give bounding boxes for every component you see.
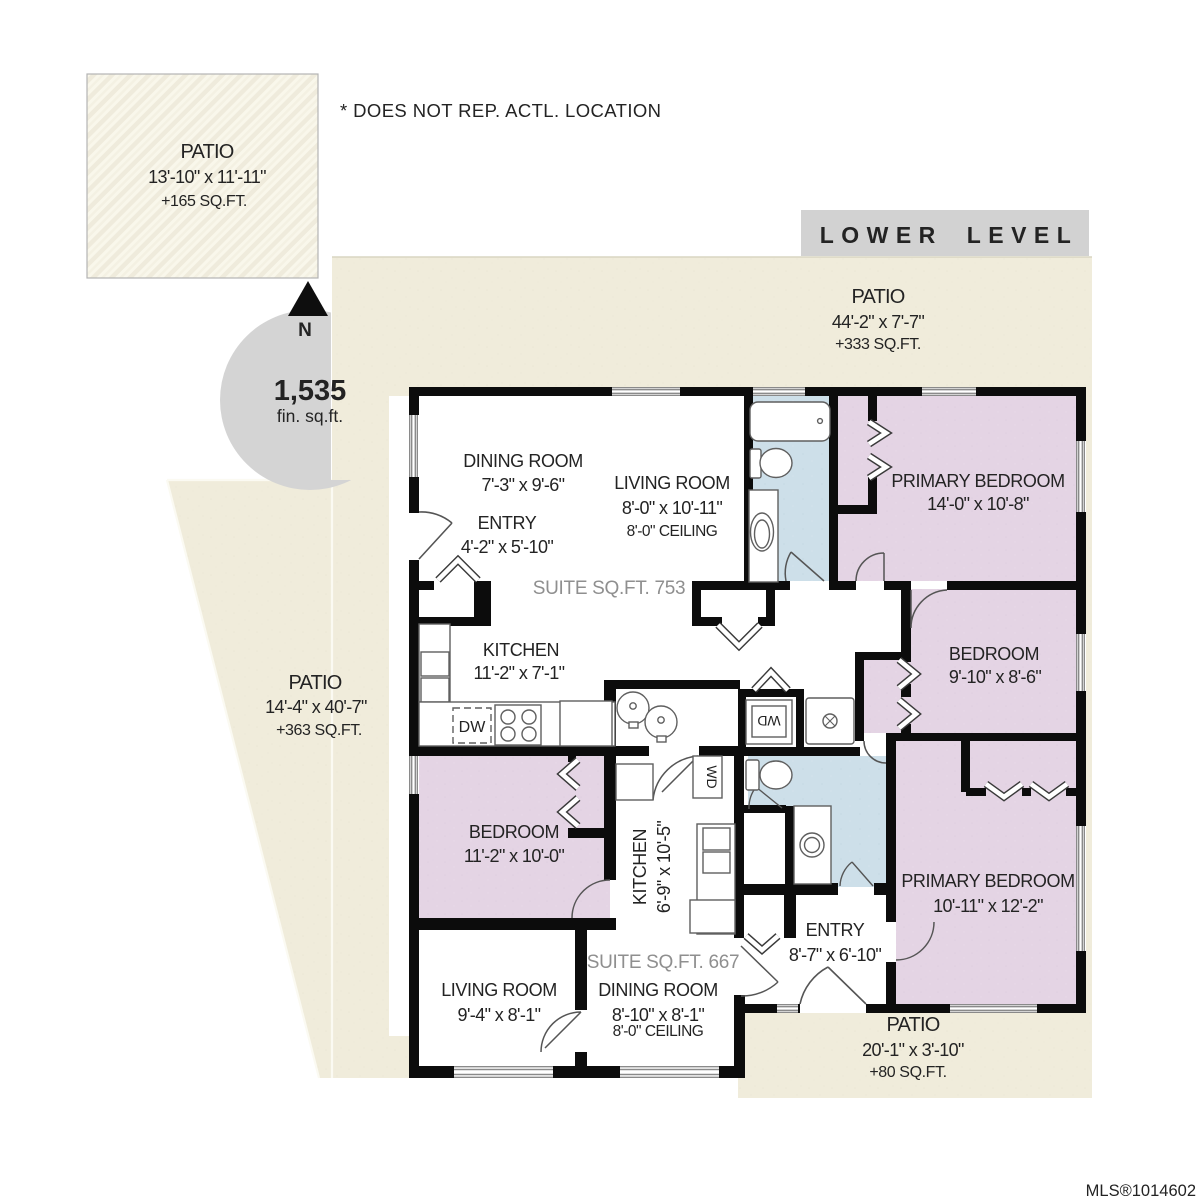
svg-text:MLS®1014602: MLS®1014602: [1086, 1182, 1196, 1200]
svg-text:fin. sq.ft.: fin. sq.ft.: [277, 406, 343, 426]
svg-text:+165 SQ.FT.: +165 SQ.FT.: [161, 193, 247, 210]
svg-text:* DOES NOT REP. ACTL. LOCATION: * DOES NOT REP. ACTL. LOCATION: [340, 100, 661, 121]
svg-text:8'-10" x 8'-1": 8'-10" x 8'-1": [612, 1005, 705, 1025]
svg-text:6'-9" x 10'-5": 6'-9" x 10'-5": [654, 821, 674, 914]
svg-text:8'-0" CEILING: 8'-0" CEILING: [613, 1023, 704, 1040]
svg-text:DW: DW: [459, 719, 487, 736]
svg-text:PRIMARY BEDROOM: PRIMARY BEDROOM: [891, 471, 1064, 491]
svg-text:WD: WD: [757, 713, 780, 729]
svg-text:PRIMARY BEDROOM: PRIMARY BEDROOM: [901, 871, 1074, 891]
svg-text:BEDROOM: BEDROOM: [469, 822, 559, 842]
svg-text:+333 SQ.FT.: +333 SQ.FT.: [835, 336, 921, 353]
svg-text:N: N: [298, 320, 312, 341]
svg-text:8'-0" CEILING: 8'-0" CEILING: [627, 523, 718, 540]
svg-text:SUITE SQ.FT. 753: SUITE SQ.FT. 753: [533, 578, 686, 599]
svg-text:14'-4" x 40'-7": 14'-4" x 40'-7": [265, 697, 367, 717]
svg-text:20'-1" x 3'-10": 20'-1" x 3'-10": [862, 1040, 964, 1060]
svg-text:BEDROOM: BEDROOM: [949, 644, 1039, 664]
svg-text:WD: WD: [704, 765, 720, 788]
svg-text:14'-0" x 10'-8": 14'-0" x 10'-8": [927, 494, 1029, 514]
svg-text:13'-10" x 11'-11": 13'-10" x 11'-11": [148, 167, 266, 187]
svg-text:KITCHEN: KITCHEN: [483, 640, 559, 660]
svg-text:PATIO: PATIO: [180, 141, 233, 163]
svg-text:8'-7" x 6'-10": 8'-7" x 6'-10": [789, 945, 882, 965]
svg-text:9'-4" x 8'-1": 9'-4" x 8'-1": [458, 1005, 541, 1025]
svg-text:LIVING ROOM: LIVING ROOM: [441, 980, 557, 1000]
svg-text:4'-2" x 5'-10": 4'-2" x 5'-10": [461, 537, 554, 557]
svg-text:PATIO: PATIO: [851, 286, 904, 308]
svg-text:11'-2" x 7'-1": 11'-2" x 7'-1": [474, 663, 565, 683]
svg-text:1,535: 1,535: [274, 375, 347, 407]
svg-text:ENTRY: ENTRY: [478, 513, 537, 533]
svg-text:44'-2" x 7'-7": 44'-2" x 7'-7": [832, 312, 925, 332]
svg-text:10'-11" x 12'-2": 10'-11" x 12'-2": [933, 896, 1043, 916]
svg-text:9'-10" x 8'-6": 9'-10" x 8'-6": [949, 667, 1042, 687]
svg-text:KITCHEN: KITCHEN: [630, 829, 650, 905]
svg-text:ENTRY: ENTRY: [806, 920, 865, 940]
svg-text:PATIO: PATIO: [288, 672, 341, 694]
svg-text:+363 SQ.FT.: +363 SQ.FT.: [276, 722, 362, 739]
svg-text:DINING ROOM: DINING ROOM: [463, 451, 583, 471]
svg-text:11'-2" x 10'-0": 11'-2" x 10'-0": [464, 846, 565, 866]
svg-text:PATIO: PATIO: [886, 1014, 939, 1036]
svg-text:DINING ROOM: DINING ROOM: [598, 980, 718, 1000]
svg-text:+80 SQ.FT.: +80 SQ.FT.: [869, 1064, 946, 1081]
svg-text:LIVING ROOM: LIVING ROOM: [614, 473, 730, 493]
svg-text:7'-3" x 9'-6": 7'-3" x 9'-6": [482, 475, 565, 495]
svg-text:SUITE SQ.FT. 667: SUITE SQ.FT. 667: [587, 952, 740, 973]
svg-text:8'-0" x 10'-11": 8'-0" x 10'-11": [622, 498, 723, 518]
